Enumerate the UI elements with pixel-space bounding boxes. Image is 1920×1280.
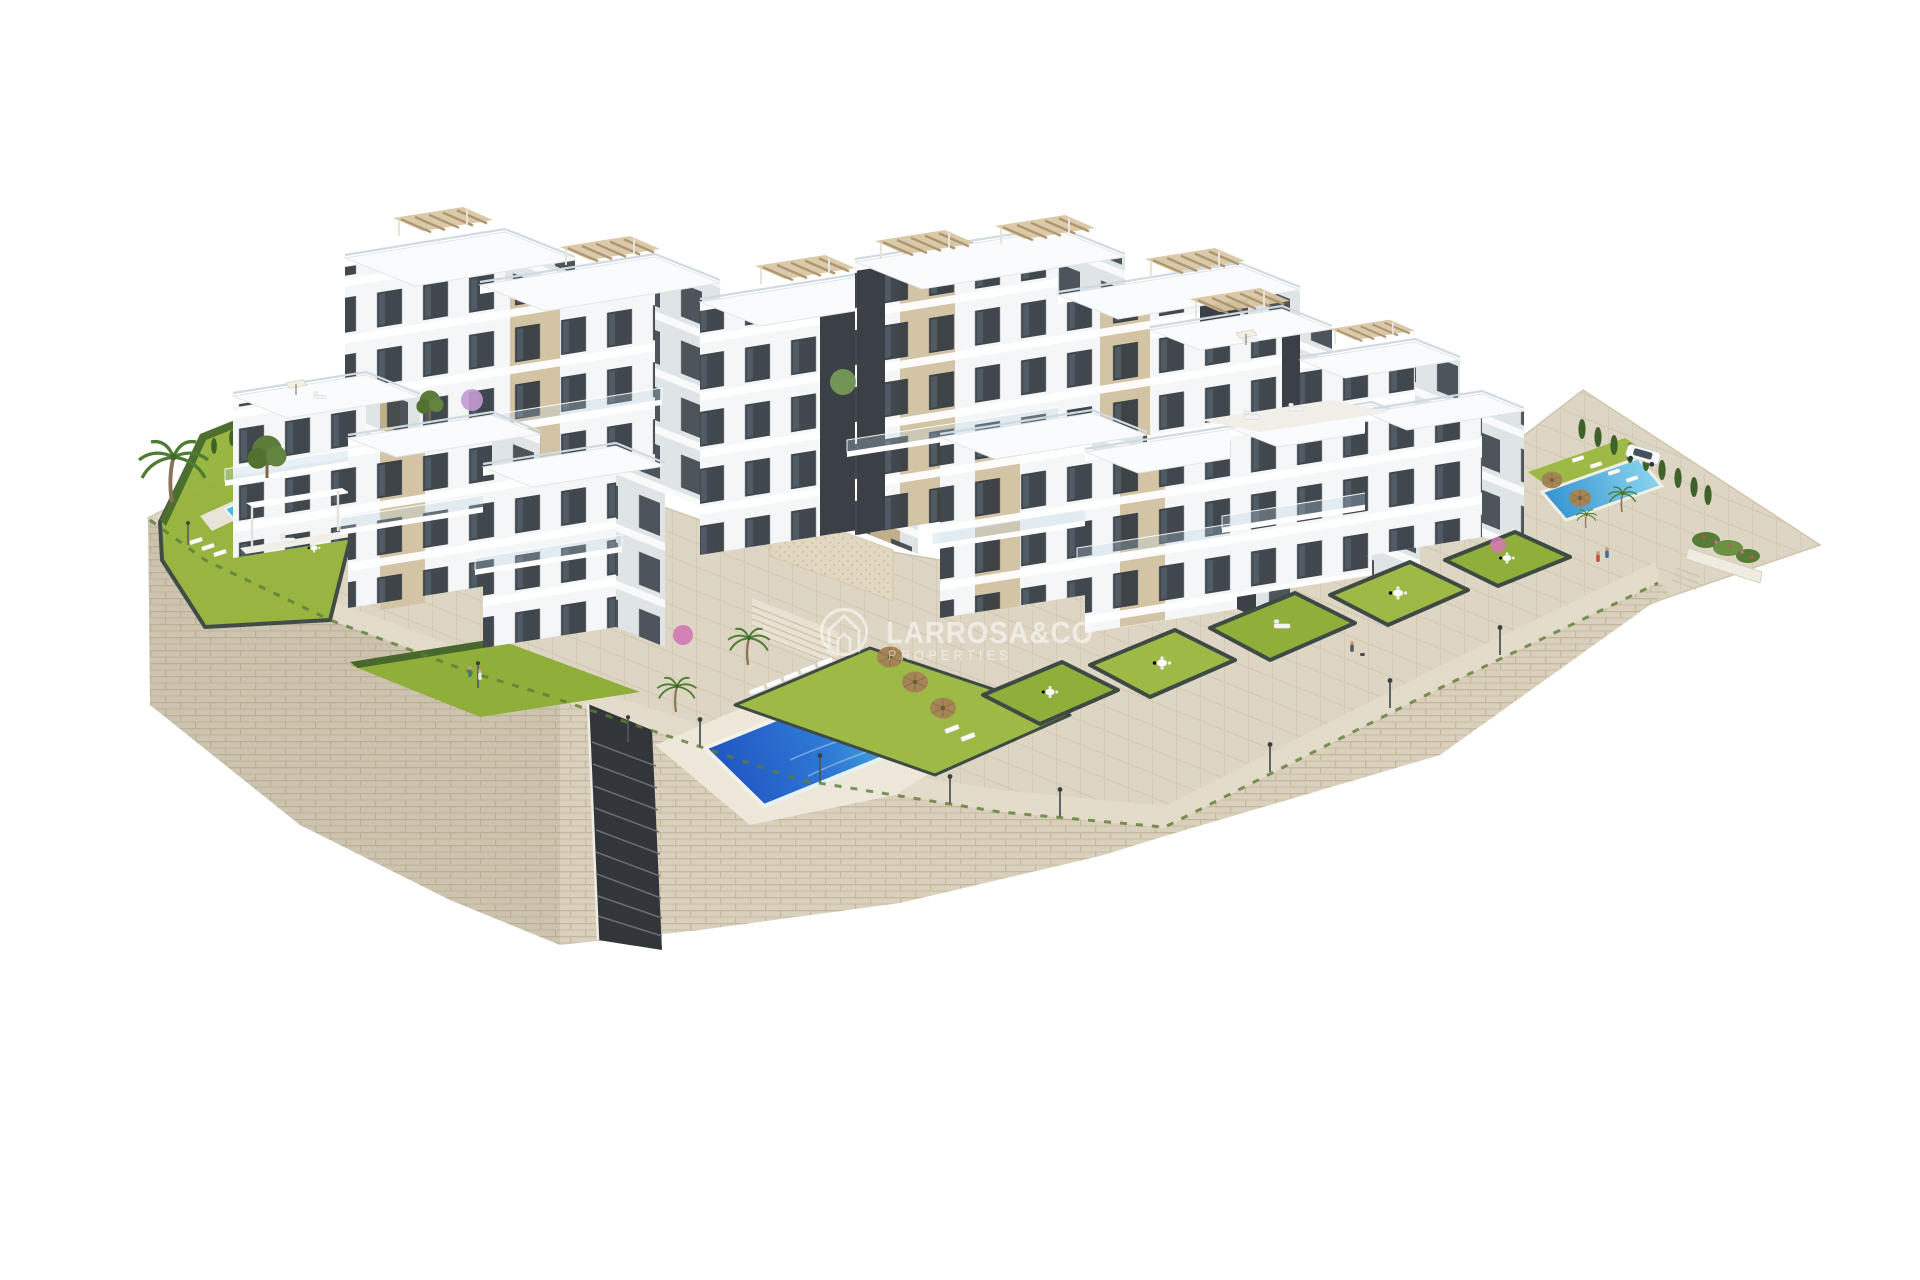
bougainvillea [1490, 537, 1506, 553]
aerial-render-svg: LARROSA&CO PROPERTIES [0, 0, 1920, 1280]
watermark-brand-text: LARROSA&CO [886, 615, 1094, 650]
hillside-staircase [588, 704, 662, 950]
render-canvas: LARROSA&CO PROPERTIES [0, 0, 1920, 1280]
villa-3 [475, 443, 665, 648]
dog [1360, 653, 1365, 656]
watermark-tagline-text: PROPERTIES [888, 648, 1012, 663]
straw-umbrella [902, 672, 928, 693]
jacaranda-tree [461, 389, 483, 411]
right-block-4 [1365, 391, 1524, 556]
bougainvillea [673, 625, 693, 645]
straw-umbrella [930, 698, 956, 719]
green-tree [830, 369, 856, 395]
